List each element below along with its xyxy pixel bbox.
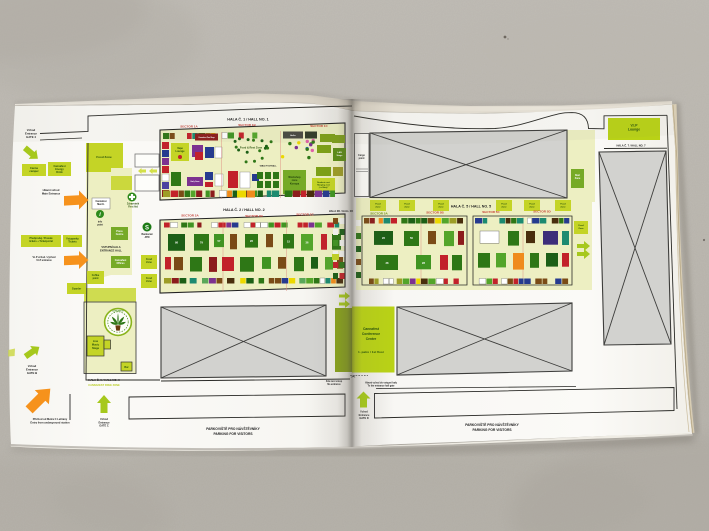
svg-text:ATM: ATM: [145, 236, 150, 239]
svg-text:CANNAFEST FREE ZONE: CANNAFEST FREE ZONE: [88, 383, 120, 387]
svg-text:Zone: Zone: [404, 206, 410, 208]
svg-text:S: S: [145, 225, 149, 231]
svg-text:Music: Music: [92, 342, 100, 346]
svg-text:HALA Č. 2 / HALL NO. 2: HALA Č. 2 / HALL NO. 2: [223, 207, 264, 212]
svg-text:SECTOR 5C: SECTOR 5C: [482, 210, 500, 214]
svg-text:V.I.P entrance: V.I.P entrance: [36, 259, 52, 262]
svg-text:Zone: Zone: [578, 228, 584, 230]
svg-text:Lounge: Lounge: [175, 150, 185, 153]
svg-text:CANNAFEST: CANNAFEST: [112, 309, 125, 312]
svg-text:Food: Food: [578, 225, 584, 227]
svg-text:Tickets: Tickets: [68, 241, 77, 244]
svg-text:Bar: Bar: [124, 366, 128, 369]
svg-text:Food: Food: [501, 204, 507, 206]
svg-text:Live: Live: [93, 339, 99, 343]
svg-text:Entry from underground station: Entry from underground station: [30, 420, 70, 424]
svg-text:Rest: Rest: [575, 174, 580, 177]
svg-text:Food: Food: [529, 204, 535, 206]
svg-text:Food & Rest Zone: Food & Rest Zone: [240, 146, 263, 150]
svg-text:Zone: Zone: [438, 206, 444, 208]
svg-text:Zone: Zone: [529, 206, 535, 208]
svg-text:camper: camper: [29, 169, 38, 173]
svg-text:Food Zone: Food Zone: [96, 155, 112, 159]
svg-text:Guarder: Guarder: [72, 288, 81, 291]
svg-text:Main Entrance: Main Entrance: [42, 192, 61, 196]
svg-text:SECTOR 5D: SECTOR 5D: [533, 210, 551, 214]
svg-text:Food: Food: [560, 204, 566, 206]
svg-text:HALA Č. 6 / HALL NO. 6: HALA Č. 6 / HALL NO. 6: [88, 377, 120, 382]
svg-text:GATE B: GATE B: [27, 371, 37, 375]
svg-text:PARKOVIŠTĚ PRO NÁVŠTĚVNÍKY: PARKOVIŠTĚ PRO NÁVŠTĚVNÍKY: [206, 426, 260, 431]
svg-text:SECTOR 5B: SECTOR 5B: [426, 211, 444, 215]
svg-text:point: point: [97, 223, 103, 226]
svg-text:TABLE FOOTBALL: TABLE FOOTBALL: [260, 165, 278, 168]
svg-text:PARKING FOR VISITORS: PARKING FOR VISITORS: [472, 428, 512, 432]
svg-text:HALA Č. 5 / HALL NO. 5: HALA Č. 5 / HALL NO. 5: [451, 204, 491, 209]
svg-text:Centre: Centre: [116, 233, 124, 236]
svg-text:Offices: Offices: [116, 262, 125, 265]
svg-text:PARKOVIŠTĚ PRO NÁVŠTĚVNÍKY: PARKOVIŠTĚ PRO NÁVŠTĚVNÍKY: [465, 422, 519, 427]
svg-text:tickets + Ticketportal: tickets + Ticketportal: [29, 240, 53, 243]
svg-text:Stage: Stage: [92, 346, 100, 350]
svg-text:SECTOR 2A: SECTOR 2A: [181, 214, 199, 218]
svg-text:Zone: Zone: [146, 280, 152, 283]
svg-text:Hlavní vchod: Hlavní vchod: [43, 188, 60, 192]
svg-text:Food: Food: [404, 204, 410, 206]
svg-text:Zone: Zone: [146, 261, 152, 264]
svg-text:point: point: [93, 277, 99, 280]
svg-text:info: info: [98, 222, 103, 224]
svg-text:PARKING FOR VISITORS: PARKING FOR VISITORS: [213, 432, 253, 436]
svg-text:Příchod od Metra C Letňany: Příchod od Metra C Letňany: [33, 417, 68, 421]
svg-text:Zone: Zone: [560, 206, 566, 208]
svg-text:ENTRANCE HALL: ENTRANCE HALL: [100, 248, 122, 252]
svg-text:SECTOR 2B: SECTOR 2B: [245, 214, 263, 218]
svg-text:First Aid: First Aid: [128, 206, 138, 209]
svg-text:Drink: Drink: [56, 171, 63, 174]
svg-text:Cannafest: Cannafest: [95, 200, 106, 203]
svg-text:Zone: Zone: [575, 178, 581, 180]
svg-text:Food: Food: [438, 204, 444, 206]
svg-text:Merch.: Merch.: [97, 204, 105, 206]
svg-text:Harly Grow: Harly Grow: [190, 181, 200, 183]
svg-text:Konopa: Konopa: [290, 182, 300, 185]
svg-text:Bankomat: Bankomat: [141, 233, 152, 236]
svg-text:GATE C: GATE C: [99, 424, 109, 428]
svg-text:Zone: Zone: [501, 206, 507, 208]
